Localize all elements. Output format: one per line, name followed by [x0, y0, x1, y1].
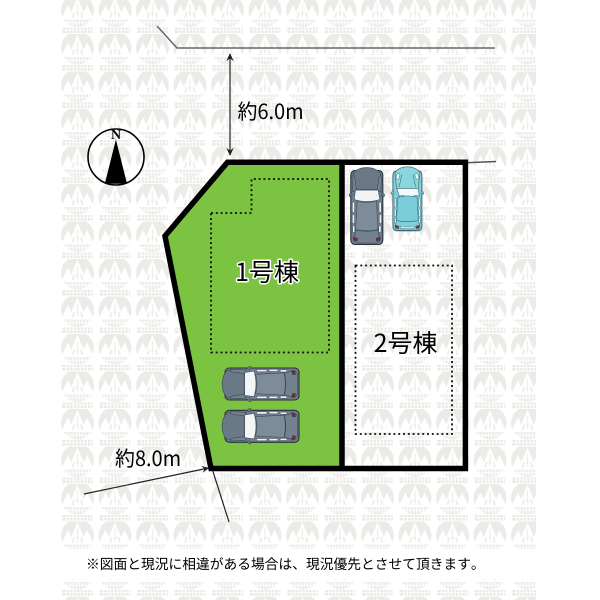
svg-text:N: N: [111, 128, 121, 143]
